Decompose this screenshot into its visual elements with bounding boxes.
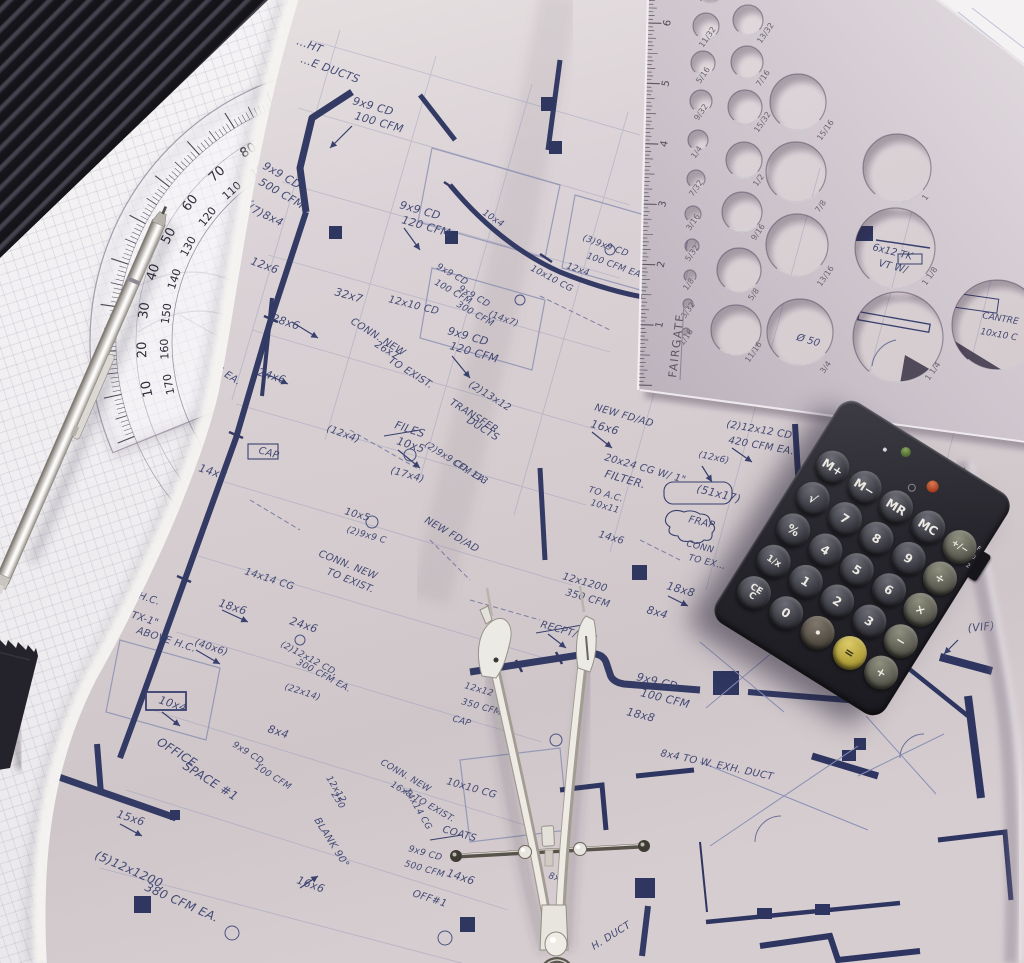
ring-dot-icon	[906, 482, 917, 493]
red-led-icon	[924, 478, 941, 495]
leather-corner	[0, 638, 38, 770]
divider-adjust-screw	[541, 826, 554, 847]
green-led-icon	[899, 445, 913, 459]
drafting-desk-photo: 9080100701106012050130401403015020160101…	[0, 0, 1024, 963]
protractor-degree-label: 20	[135, 341, 151, 358]
blueprint-annotation: CFM	[128, 515, 153, 536]
circle-template: 123456 1/163/321/85/323/167/321/49/325/1…	[638, 0, 1024, 454]
white-dot-icon	[882, 447, 888, 453]
protractor-degree-label: 160	[158, 338, 172, 359]
